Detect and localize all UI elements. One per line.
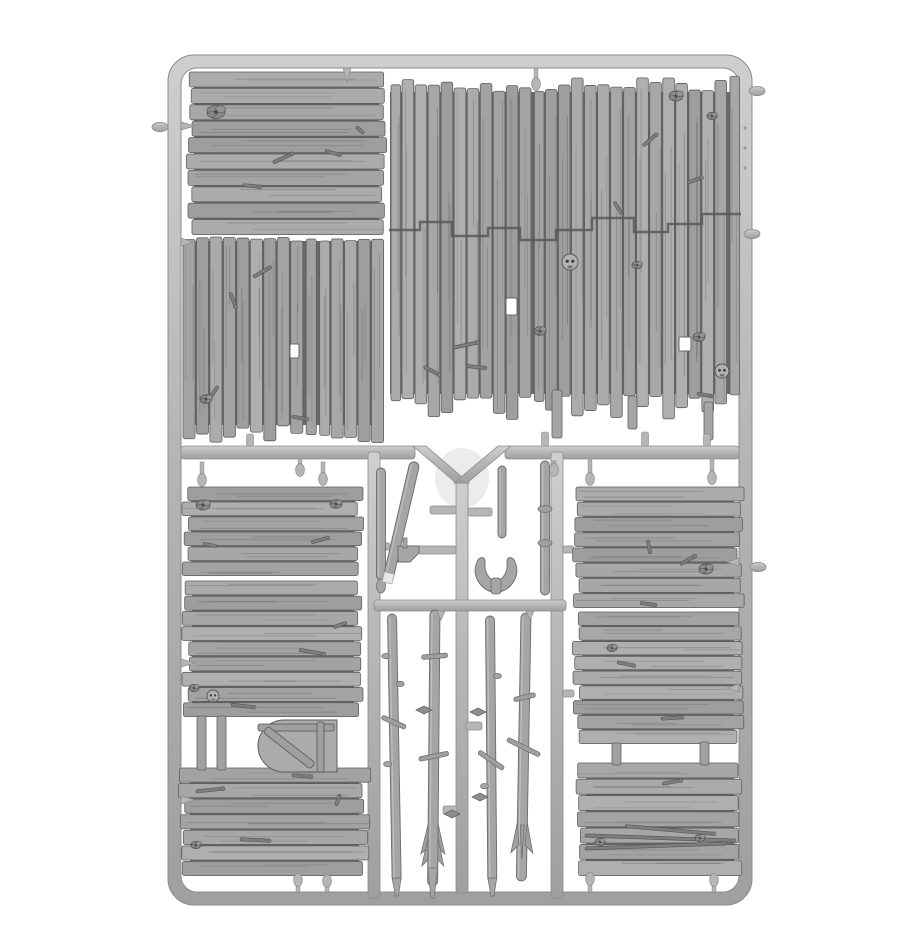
decor-knot-11 [669,91,683,101]
panel-post-3 [700,742,709,765]
sprue-peg-11 [708,460,717,484]
panel-lower-right-top [573,487,744,608]
sprue-peg-9 [319,462,328,485]
runner-mid-right [505,446,739,459]
sprue-peg-21 [710,874,719,892]
panel-post-0 [197,716,206,770]
stick-l3 [476,616,506,896]
panel-lower-left-bottom [178,768,370,876]
decor-knot-27 [196,500,210,510]
frame-mark-2 [743,166,746,169]
panel-post-2 [612,743,621,765]
runner-crossbar-2 [418,546,456,554]
decor-knot-0 [207,106,225,119]
stick-l2 [417,610,450,898]
panel-top-left [186,72,386,235]
decor-skull-33 [207,690,219,702]
runner-crossbar-6 [563,690,574,697]
runner-right-vertical [551,452,563,898]
horn-part [475,558,517,594]
leaf-pod-0 [470,708,486,716]
round-door [258,720,337,772]
runner-mid-lower [374,600,566,611]
sprue-peg-20 [586,873,595,892]
decor-skull-13 [562,254,578,270]
plank-tail-0 [552,390,562,438]
decor-knot-23 [707,112,717,119]
sprue-peg-12 [296,459,305,476]
runner-crossbar-3 [466,722,482,730]
decor-hole-17 [679,337,691,351]
frame-nub-0 [749,86,765,95]
leaf-pod-2 [472,793,488,801]
decor-knot-15 [693,333,705,342]
stick-l1 [379,614,409,896]
sprue-photo [0,0,920,950]
decor-hole-16 [506,298,517,315]
sprue-peg-10 [586,460,595,485]
sprue-peg-8 [198,462,207,486]
decor-knot-25 [632,261,642,268]
sprue-peg-14 [247,434,254,446]
frame-nub-1 [744,229,760,238]
sprue-peg-15 [542,432,549,446]
decor-skull-14 [715,364,729,378]
sprue-peg-1 [532,68,541,90]
decor-knot-9 [200,395,212,404]
decor-knot-52 [695,834,705,841]
runner-crossbar-0 [430,506,456,514]
frame-mark-1 [743,146,746,149]
stick-u3 [498,466,506,538]
frame-nub-2 [750,562,766,571]
stick-u4 [538,461,552,595]
stick-u2 [382,461,420,584]
frame-nub-3 [152,122,168,131]
runner-crossbar-1 [468,508,492,516]
panel-mid-left [183,237,384,443]
runner-center-vertical [456,478,468,893]
stick-l4 [504,613,543,882]
sprue-peg-16 [642,432,649,446]
sprue-peg-18 [294,874,303,892]
sprue-peg-17 [704,434,711,446]
decor-knot-51 [595,838,605,845]
panel-lower-right-bottom [576,763,742,876]
decor-knot-35 [189,684,199,691]
decor-knot-42 [699,564,713,574]
decor-knot-20 [534,327,546,336]
decor-knot-28 [330,500,342,509]
panel-lower-right-mid [572,612,743,744]
decor-knot-38 [191,841,201,848]
plank-tail-1 [628,396,637,429]
decor-knot-46 [607,644,617,651]
panel-post-1 [217,716,226,770]
frame-mark-0 [743,126,746,129]
panel-large-right [390,76,740,419]
sprue-peg-19 [323,875,332,892]
decor-hole-7 [290,344,299,358]
sprue-scene [0,0,920,950]
